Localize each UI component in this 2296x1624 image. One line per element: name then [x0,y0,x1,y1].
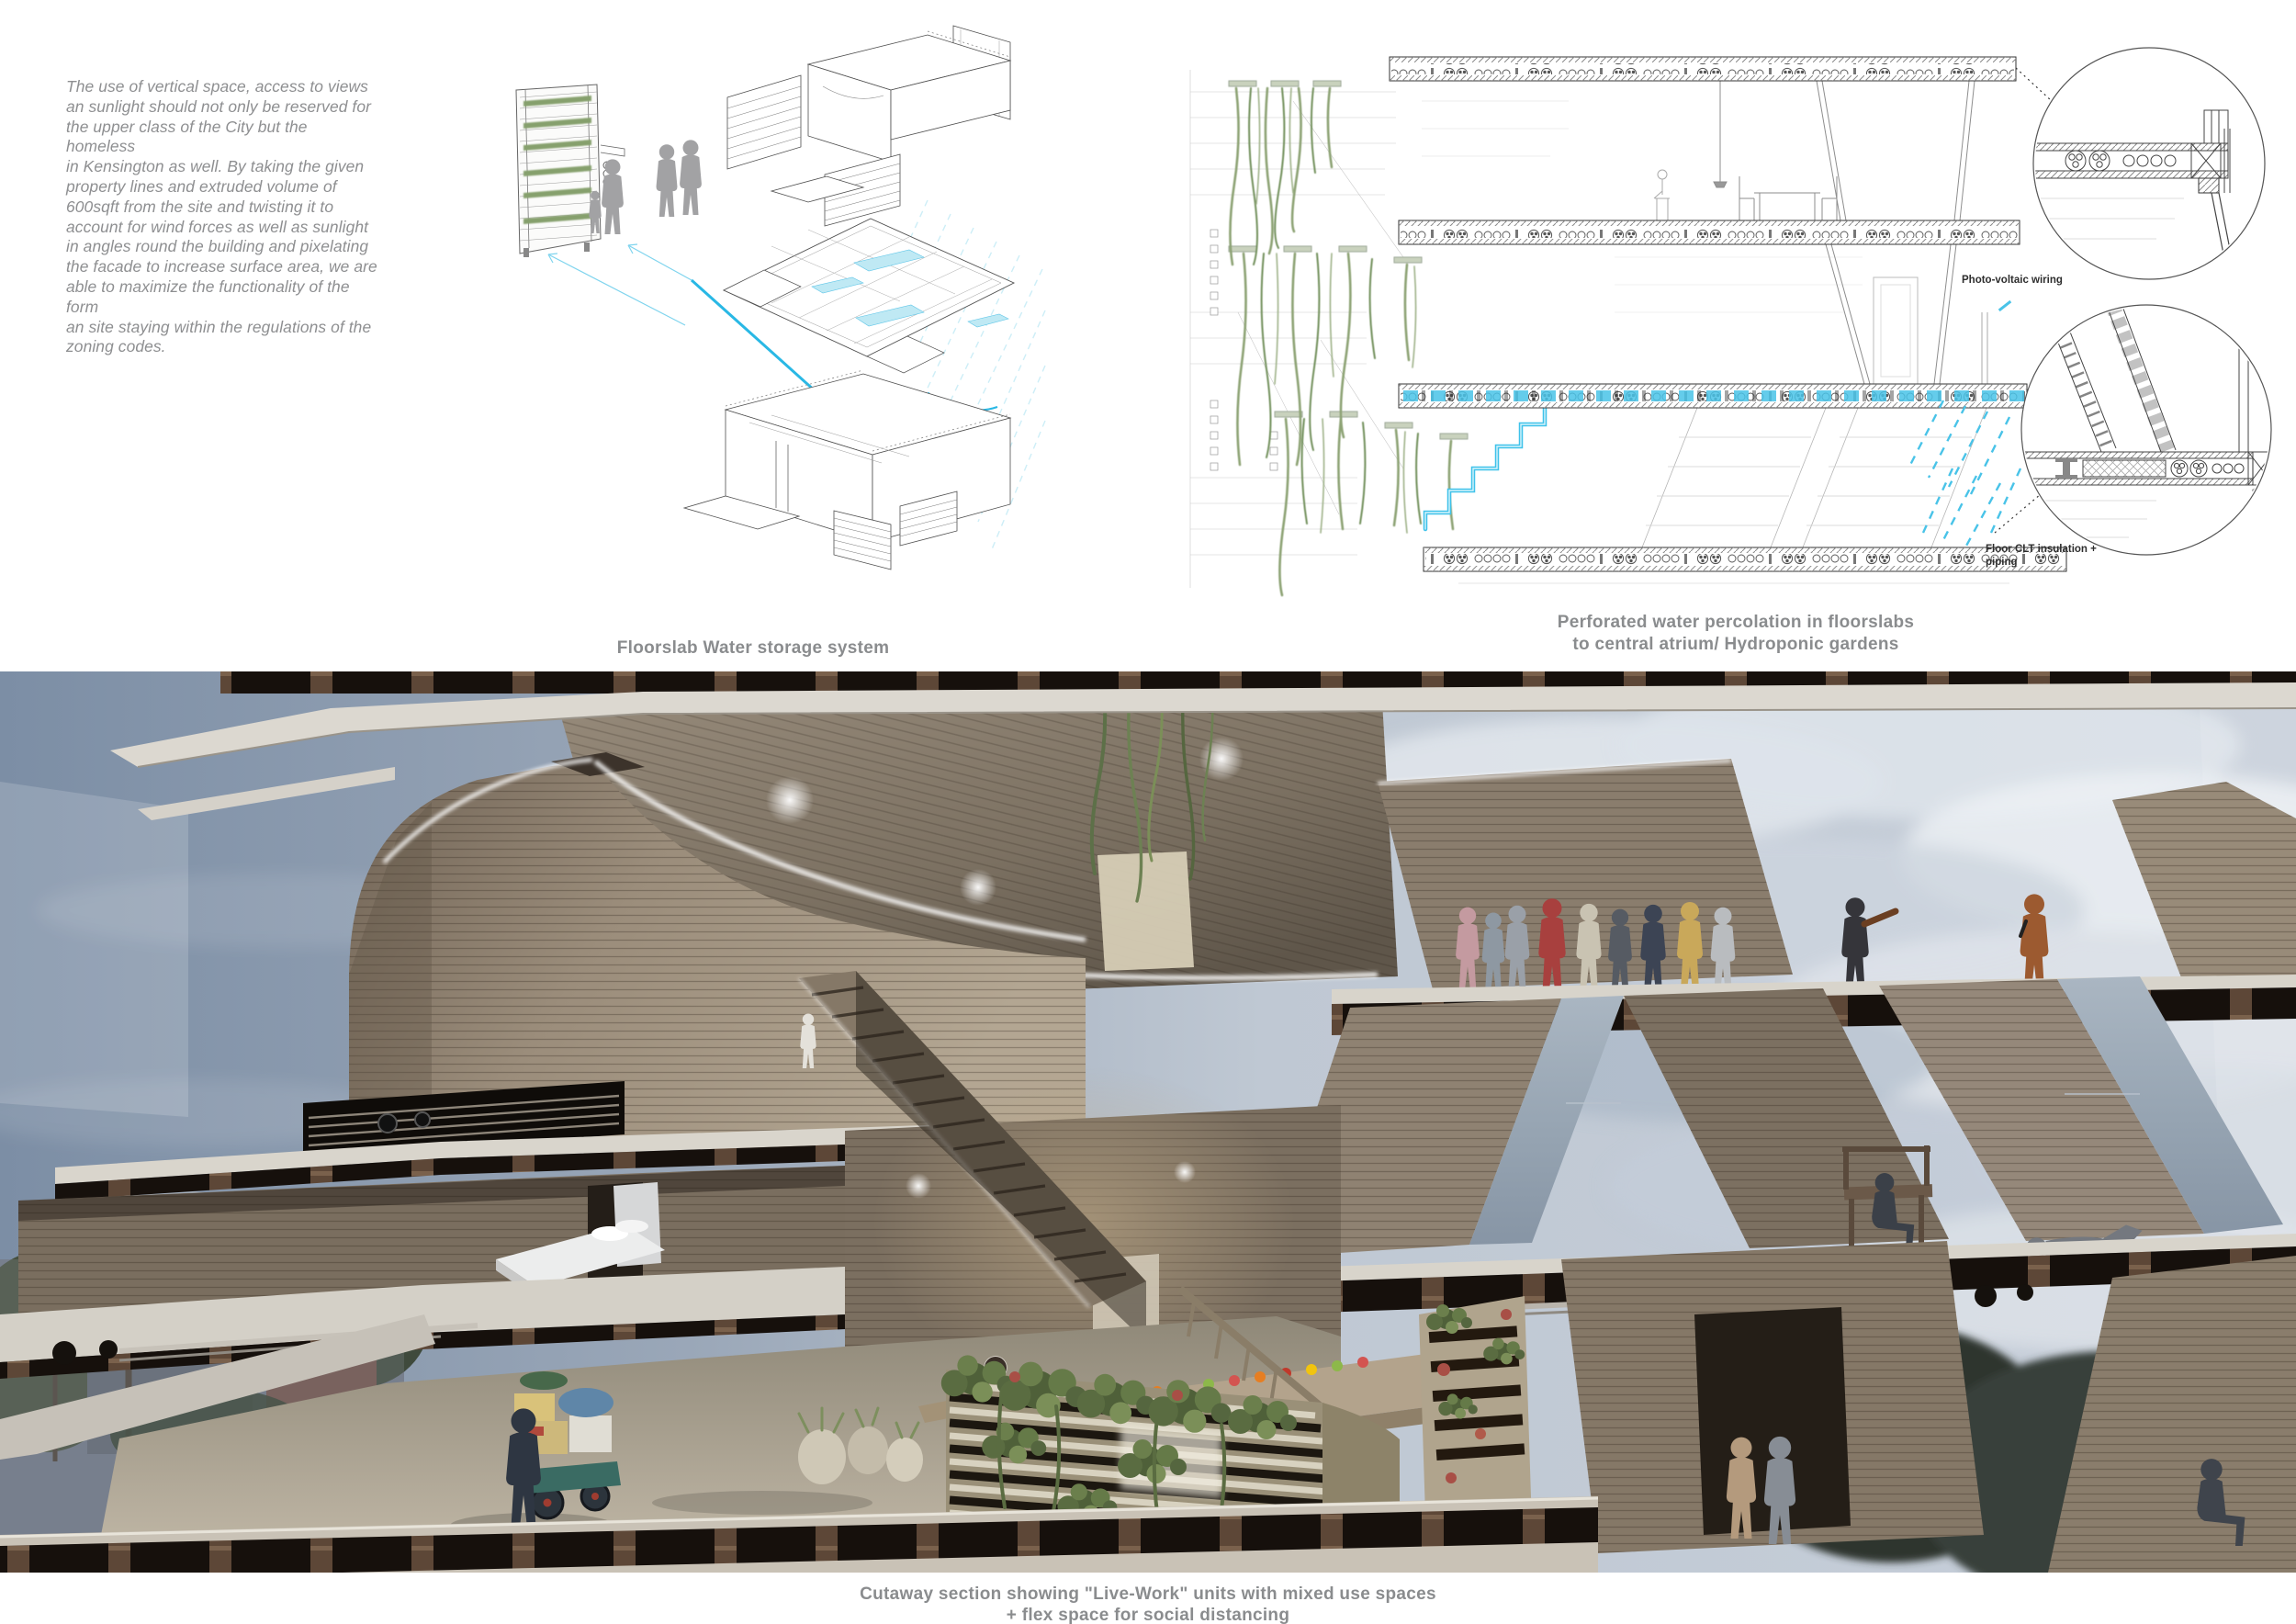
water-in-slab [1401,390,2025,401]
floorslab-bands [1390,57,2066,571]
lower-right [1561,1241,2296,1573]
axon-diagram [496,7,1047,614]
annotation-photovoltaic: Photo-voltaic wiring [1962,275,2063,288]
axon-upper-unit [727,26,1010,226]
pv-tick [1998,300,2011,311]
axon-floorslab [548,219,1014,411]
section-furniture [1654,170,1837,220]
skylight [1097,851,1194,971]
cutaway-render [0,671,2296,1573]
leader-top [2016,68,2052,101]
section-diagram [1183,37,2296,611]
people-silhouettes [589,140,702,234]
annotation-clt: Floor CLT insulation + piping [1986,544,2097,569]
section-caption-line1: Perforated water percolation in floorsla… [1469,612,2002,634]
leader-bottom [1995,494,2041,533]
axon-lower-unit [684,370,1010,570]
render-caption-line2: + flex space for social distancing [0,1605,2296,1624]
detail-circle-clt [2021,301,2290,555]
intro-paragraph: The use of vertical space, access to vie… [66,77,378,357]
axon-caption: Floorslab Water storage system [478,637,1029,660]
section-left-walls [1190,70,1863,588]
render-caption-line1: Cutaway section showing "Live-Work" unit… [0,1584,2296,1606]
section-caption-line2: to central atrium/ Hydroponic gardens [1469,634,2002,656]
presentation-board: The use of vertical space, access to vie… [0,0,2296,1624]
detail-circle-pv [2028,48,2265,279]
